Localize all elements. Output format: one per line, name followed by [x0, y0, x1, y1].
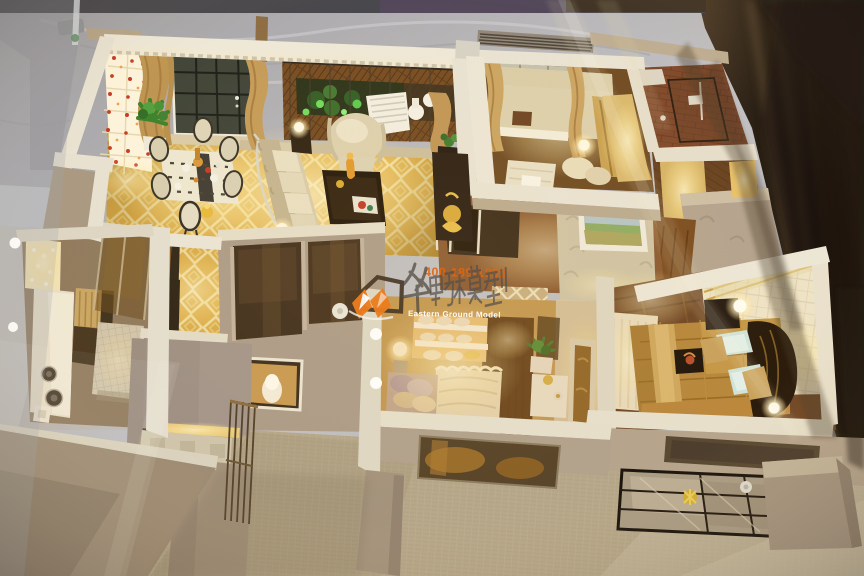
- svg-text:Eastern Ground Model: Eastern Ground Model: [408, 309, 501, 320]
